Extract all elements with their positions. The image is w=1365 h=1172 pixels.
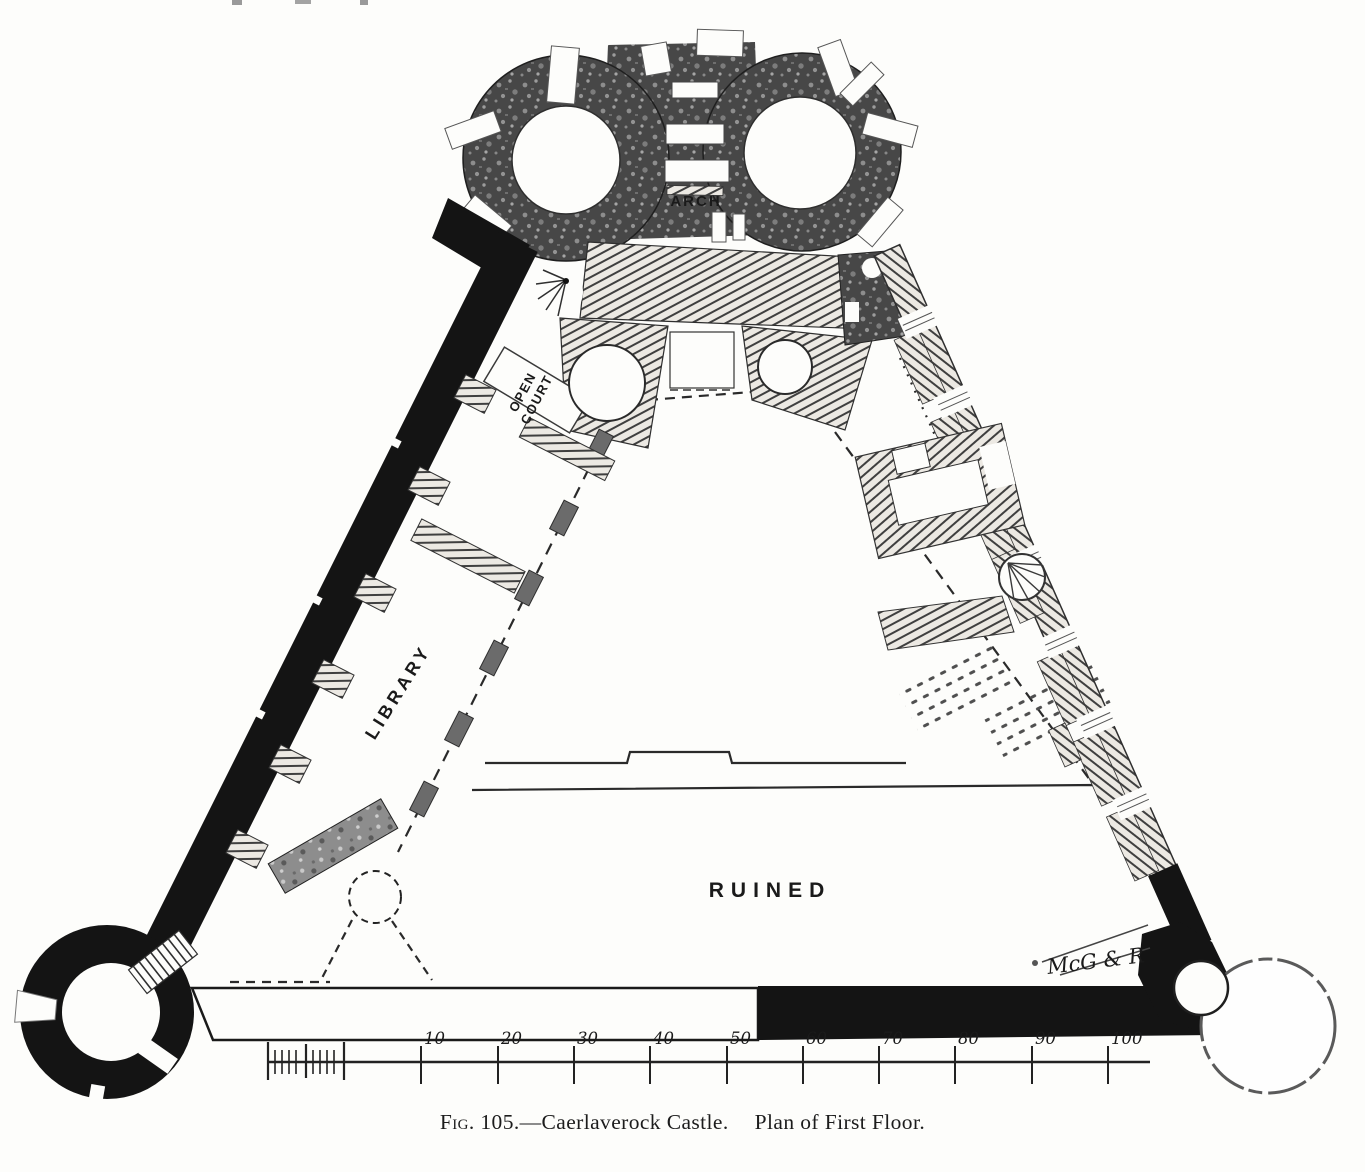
arch-label: ARCH bbox=[670, 193, 721, 210]
spiral-stair bbox=[999, 554, 1045, 600]
engraver-signature: McG & R bbox=[1045, 943, 1146, 979]
scan-edge-artifacts bbox=[232, 0, 368, 5]
inner-stair-tower-left bbox=[569, 345, 645, 421]
figure-caption: Fig. 105.—Caerlaverock Castle.Plan of Fi… bbox=[0, 1110, 1365, 1135]
ruined-label: RUINED bbox=[709, 879, 832, 902]
scale-tick-label: 20 bbox=[500, 1029, 522, 1048]
scale-bar bbox=[268, 1042, 1150, 1084]
scale-tick-label: 40 bbox=[652, 1029, 674, 1048]
scale-tick-label: 60 bbox=[806, 1029, 827, 1048]
fan-stair bbox=[533, 267, 583, 317]
scanned-book-page: ARCH OPEN COURT LIBRARY RUINED McG & R bbox=[0, 0, 1365, 1172]
scale-tick-label: 90 bbox=[1035, 1029, 1056, 1048]
right-drum-interior bbox=[744, 97, 856, 209]
scale-tick-label: 80 bbox=[958, 1029, 979, 1048]
caption-separator: — bbox=[520, 1110, 542, 1134]
castle-floor-plan: ARCH OPEN COURT LIBRARY RUINED McG & R bbox=[0, 0, 1365, 1105]
scale-tick-label: 30 bbox=[577, 1029, 598, 1048]
southwest-tower bbox=[15, 925, 198, 1105]
scale-tick-label: 100 bbox=[1111, 1029, 1143, 1048]
figure-number: Fig. 105. bbox=[440, 1110, 520, 1134]
caption-title: Caerlaverock Castle. bbox=[542, 1110, 729, 1134]
scale-tick-label: 10 bbox=[424, 1029, 445, 1048]
gatehouse-towers bbox=[445, 29, 918, 261]
left-drum-interior bbox=[512, 106, 620, 214]
caption-subtitle: Plan of First Floor. bbox=[755, 1110, 925, 1134]
scale-tick-label: 70 bbox=[882, 1029, 903, 1048]
library-label: LIBRARY bbox=[361, 641, 435, 743]
inner-stair-tower-right bbox=[758, 340, 812, 394]
scale-tick-label: 50 bbox=[730, 1029, 751, 1048]
east-curtain-wall bbox=[860, 243, 1214, 959]
